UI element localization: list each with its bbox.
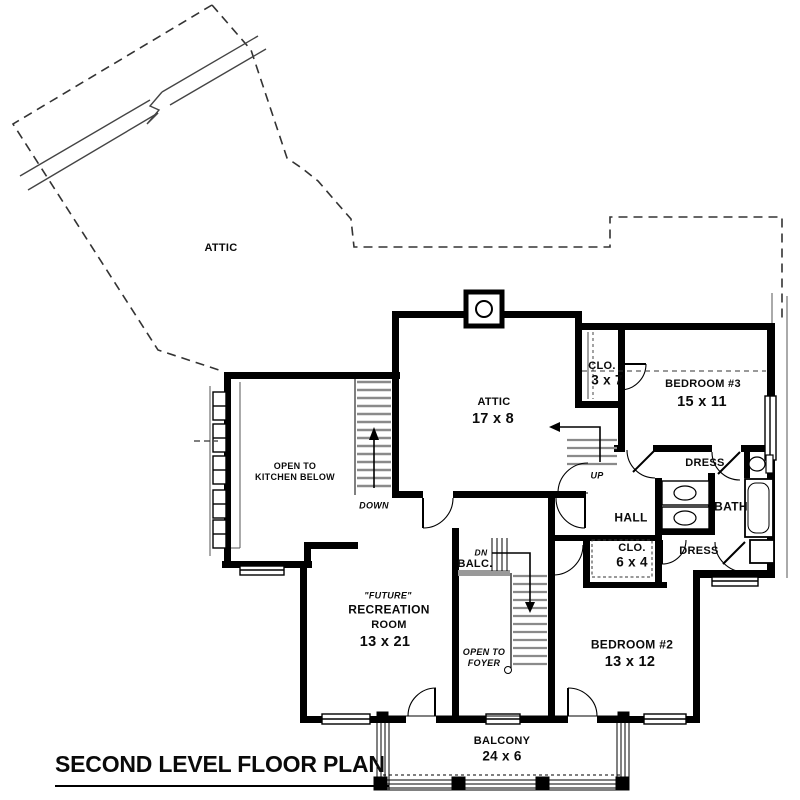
toilet-bowl <box>749 457 765 471</box>
dress-upper-label: DRESS <box>685 457 724 471</box>
dashed-details <box>194 332 766 577</box>
break-symbol <box>147 92 162 124</box>
rail-volute <box>505 667 512 674</box>
second-level-floor-plan: ATTIC ATTIC 17 x 8 CLO. 3 x 7 BEDROOM #3… <box>0 0 800 800</box>
open-to-foyer-label: OPEN TO FOYER <box>463 647 505 670</box>
down-label: DOWN <box>359 500 389 511</box>
closet-upper-dims: 3 x 7 <box>591 373 623 390</box>
attic-room-label: ATTIC <box>477 396 510 410</box>
stairs-down <box>355 378 391 495</box>
rail-spindles <box>492 538 507 571</box>
balcony-dims: 24 x 6 <box>482 749 521 766</box>
balcony-label: BALCONY <box>474 735 531 749</box>
balc-label: BALC. <box>457 558 492 572</box>
roof-ridge-line <box>20 36 266 190</box>
sink-2 <box>674 511 696 525</box>
open-to-kitchen-label: OPEN TO KITCHEN BELOW <box>255 461 335 484</box>
stairs-up <box>549 422 617 464</box>
chimney <box>466 292 502 326</box>
bath-label: BATH <box>714 500 748 515</box>
bedroom2-label: BEDROOM #2 <box>591 638 673 653</box>
recreation-dims: 13 x 21 <box>360 633 410 651</box>
toilet-tank <box>766 455 773 473</box>
recreation-label: RECREATION <box>348 603 429 618</box>
sink-1 <box>674 486 696 500</box>
linen-cabinet <box>750 540 774 563</box>
bathtub-inner <box>748 483 769 533</box>
attic-room-dims: 17 x 8 <box>472 410 514 428</box>
future-label: "FUTURE" <box>364 590 411 601</box>
recreation-room-label: ROOM <box>371 619 406 633</box>
bedroom3-dims: 15 x 11 <box>677 393 727 411</box>
hall-label: HALL <box>614 511 647 526</box>
dress-lower-label: DRESS <box>679 545 718 559</box>
bedroom3-label: BEDROOM #3 <box>665 378 741 392</box>
dn-label: DN <box>475 548 488 559</box>
attic-upper-label: ATTIC <box>204 242 237 256</box>
bedroom2-dims: 13 x 12 <box>605 653 655 671</box>
closet-lower-dims: 6 x 4 <box>616 555 648 572</box>
exterior-trim <box>210 293 787 578</box>
page-title: SECOND LEVEL FLOOR PLAN <box>55 750 389 787</box>
up-label: UP <box>590 470 603 481</box>
